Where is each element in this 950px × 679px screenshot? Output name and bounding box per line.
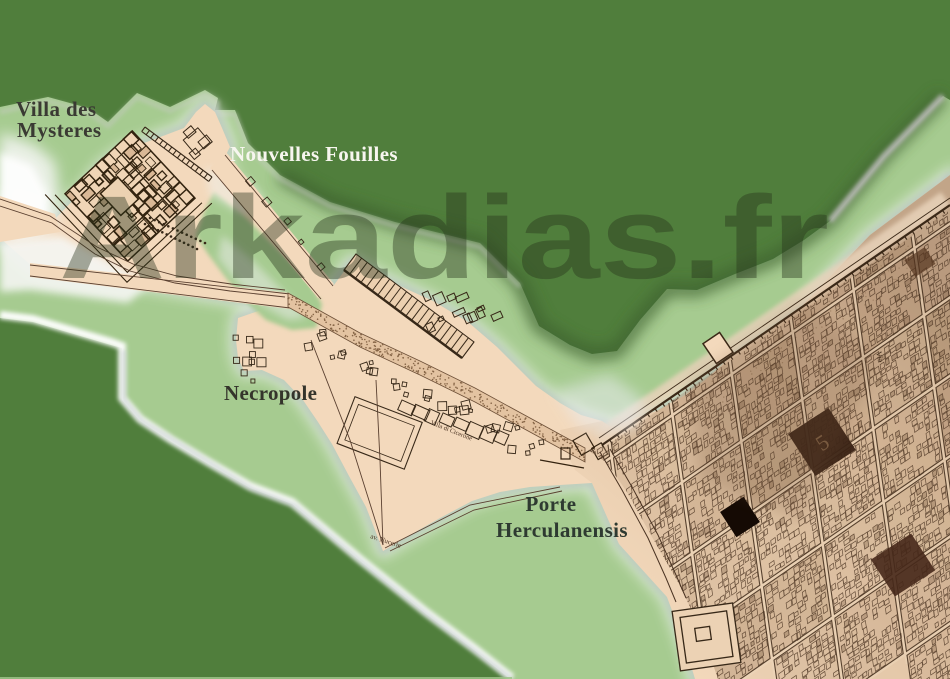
svg-text:Mysteres: Mysteres xyxy=(17,118,101,142)
svg-text:Necropole: Necropole xyxy=(224,381,317,405)
svg-text:Porte: Porte xyxy=(526,492,577,516)
svg-text:Herculanensis: Herculanensis xyxy=(496,518,628,542)
svg-text:Arkadias.fr: Arkadias.fr xyxy=(59,172,829,304)
svg-text:Nouvelles Fouilles: Nouvelles Fouilles xyxy=(230,142,398,166)
